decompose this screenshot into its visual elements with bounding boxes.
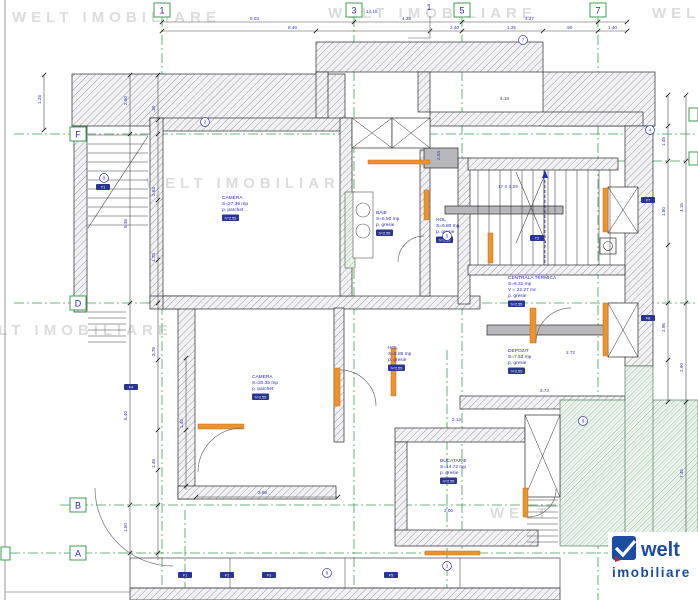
dim-label: 1.45 [179,419,184,428]
dim-label: 2.50 [123,96,128,105]
dim-label: 1.78 [151,253,156,262]
room-area: S=20.35 mp [252,380,278,386]
dim-label: 1.28 [37,95,42,104]
room-badge-label: h=2.55 [225,216,237,220]
room-badge-label: h=2.55 [511,369,523,373]
room-badge-label: h=2.55 [511,302,523,306]
circled-number-label: 6 [582,419,585,424]
dim-label: .90 [566,25,573,30]
dim-label: 4.27 [525,16,534,21]
watermark-text: WELT IMOBILIARE [652,5,698,22]
dim-label: 1.25 [507,25,516,30]
room-area: S=7.53 mp [508,354,532,360]
tag-badge-label: T2 [535,237,539,241]
grid-bubble-label: 7 [595,6,600,16]
dim-label: 2.72 [566,350,575,355]
dim-label: 3.06 [444,508,453,513]
grid-edge-box [689,108,698,121]
dim-label: 3.76 [151,347,156,356]
dim-label: 8.46 [288,25,297,30]
grid-bubble-label: F [75,130,81,140]
room-name: HOL [436,217,446,223]
room-name: DEPOZIT [508,348,529,354]
tag-badge-label: F8 [646,317,650,321]
room-badge-label: h=2.55 [255,395,267,399]
dim-label: 7.45 [679,469,684,478]
room-floor: p. parchet [222,207,244,213]
dim-label: 14.15 [366,9,378,14]
room-label: CENTRALA TERMICAS=6.31 mpV = 22.27 mcp. … [508,275,557,307]
dim-label: 1.40 [608,25,617,30]
dim-label: 2.40 [450,25,459,30]
dim-label: 1.50 [123,523,128,532]
dim-label: 2.96 [661,323,666,332]
logo-text-welt: welt [640,539,680,561]
room-name: CAMERA [252,374,273,380]
dim-label: 4.38 [402,16,411,21]
circled-number-label: 8 [326,571,329,576]
dim-label: 4.15 [679,203,684,212]
terrace-colonnade [130,558,560,588]
room-label: DEPOZITS=7.53 mpp. gresieh=2.55 [508,348,532,374]
room-name: BUCATARIE [440,458,467,464]
room-area: S=6.80 mp [436,223,460,229]
room-floor: p. parchet [252,386,274,392]
room-name: HOL [388,345,398,351]
dim-label: 1.45 [661,137,666,146]
tag-badge-label: T1 [101,186,105,190]
room-area: S=6.50 mp [376,216,400,222]
dim-label: 2.63 [151,187,156,196]
room-floor: p. gresie [388,357,407,363]
dim-label: 1.46 [151,459,156,468]
grid-edge-box [689,152,698,165]
dim-label: 1.80 [661,207,666,216]
room-name: CAMERA [222,195,243,201]
flue-symbol [600,238,616,254]
watermark-text: WELT IMOBILIARE [12,9,221,26]
room-badge-label: h=2.55 [379,231,391,235]
tag-badge-label: F1 [183,574,187,578]
room-floor: p. gresie [508,293,527,299]
dim-label: 2.90 [679,363,684,372]
dim-label: 4.18 [500,96,509,101]
grid-bubble-label: A [75,549,81,559]
grid-bubble-label: 3 [351,6,356,16]
circled-number-label: 4 [649,128,652,133]
bath-fixtures [353,192,373,258]
stair-note: 17 X 0.29 [498,184,518,189]
circled-number-label: 3 [446,564,449,569]
dim-label: 2.04 [436,151,441,160]
room-badge-label: h=2.55 [443,479,455,483]
room-name: CENTRALA TERMICA [508,275,557,281]
circled-number-label: 7 [522,38,525,43]
room-label: BUCATARIES=14.72 mpp. gresieh=2.55 [440,458,467,484]
tag-badge-label: F3 [267,574,271,578]
grid-bubble-label: 5 [459,6,464,16]
dim-label: 2.13 [452,417,461,422]
room-badge-label: h=2.55 [391,366,403,370]
room-name: BAIE [376,210,387,216]
dim-label: 8.03 [250,16,259,21]
grid-bubble-label: 1 [159,6,164,16]
section-marker-label: 1 [427,3,432,12]
room-area: S=5.85 mp [388,351,412,357]
room-floor: p. gresie [508,360,527,366]
tag-badge-label: F4 [129,386,133,390]
room-floor: p. gresie [440,470,459,476]
dim-label: .30 [151,105,156,112]
exterior-stairs [88,135,148,342]
room-label: HOLS=5.85 mpp. gresieh=2.55 [388,345,412,371]
grid-bubble-label: D [75,299,82,309]
floorplan-drawing: WELT IMOBILIAREWELT IMOBILIAREWELT IMOBI… [0,0,698,600]
agency-logo: welt imobiliare [608,532,698,584]
circled-number-label: 5 [446,234,449,239]
room-volume: V = 22.27 mc [508,287,537,293]
room-area: S=27.36 mp [222,201,248,207]
logo-text-imobiliare: imobiliare [612,565,691,580]
room-area: S=6.31 mp [508,281,532,287]
room-label: CAMERAS=27.36 mpp. parcheth=2.55 [222,195,248,221]
stair-direction-arrow [542,170,548,178]
tag-badge-label: F7 [646,199,650,203]
room-label: CAMERAS=20.35 mpp. parcheth=2.55 [252,374,278,400]
circled-number-label: 2 [204,120,207,125]
circled-number-label: 9 [103,176,106,181]
watermark-text: WELT IMOBILIARE [146,175,355,192]
tag-badge-label: F2 [225,574,229,578]
room-area: S=14.72 mp [440,464,466,470]
room-label: BAIES=6.50 mpp. gresieh=2.55 [376,210,400,236]
watermark-text: WELT IMOBILIARE [0,322,173,339]
grid-edge-box [1,547,10,560]
room-floor: p. gresie [376,222,395,228]
dim-label: 3.73 [540,388,549,393]
floorplan-sheet: WELT IMOBILIAREWELT IMOBILIAREWELT IMOBI… [0,0,698,600]
grid-bubble-label: B [75,501,81,511]
dim-label: 3.98 [258,490,267,495]
dim-label: 5.36 [123,219,128,228]
tag-badge-label: F5 [389,574,393,578]
dim-label: 6.40 [123,411,128,420]
